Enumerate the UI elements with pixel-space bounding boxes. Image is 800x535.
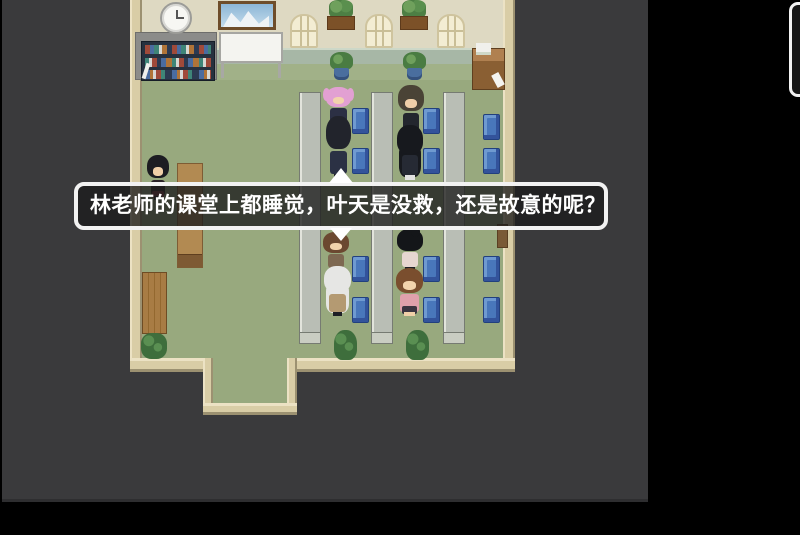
potted-plant xyxy=(330,52,353,80)
window xyxy=(290,14,318,48)
painting xyxy=(218,1,276,30)
game-screen: 林老师的课堂上都睡觉，叶天是没救，还是故意的呢？ xyxy=(0,0,800,535)
wall-bottom xyxy=(130,358,515,372)
vest-floor xyxy=(213,358,287,404)
continue-indicator-icon[interactable] xyxy=(330,228,352,241)
potted-plant xyxy=(403,52,426,80)
whiteboard xyxy=(219,32,283,78)
dialogue-box[interactable]: 林老师的课堂上都睡觉，叶天是没救，还是故意的呢？ xyxy=(74,182,608,230)
chair xyxy=(483,114,500,140)
window xyxy=(437,14,465,48)
teacher-desk xyxy=(472,48,505,90)
chair xyxy=(352,297,369,323)
chair xyxy=(352,256,369,282)
pink-top-student xyxy=(393,268,426,316)
white-haired-student xyxy=(322,266,353,316)
plank-table xyxy=(142,272,167,334)
chair xyxy=(483,297,500,323)
wall-planter xyxy=(400,0,428,30)
small-plant xyxy=(406,330,429,360)
bun-hair-student xyxy=(395,229,425,271)
bookshelf xyxy=(141,41,215,81)
wall-planter xyxy=(327,0,355,30)
vest-bottom xyxy=(203,403,297,415)
small-plant xyxy=(334,330,357,360)
chair xyxy=(352,148,369,174)
chair xyxy=(352,108,369,134)
dialogue-text: 林老师的课堂上都睡觉，叶天是没救，还是故意的呢？ xyxy=(90,186,600,226)
clock xyxy=(160,2,192,34)
chair xyxy=(423,148,440,174)
speech-tail-up-icon xyxy=(329,168,353,183)
chair xyxy=(483,148,500,174)
long-black-hair-student xyxy=(395,125,425,180)
window xyxy=(365,14,393,48)
partial-dialog-frame xyxy=(789,2,800,97)
bush xyxy=(141,333,167,359)
chair xyxy=(483,256,500,282)
